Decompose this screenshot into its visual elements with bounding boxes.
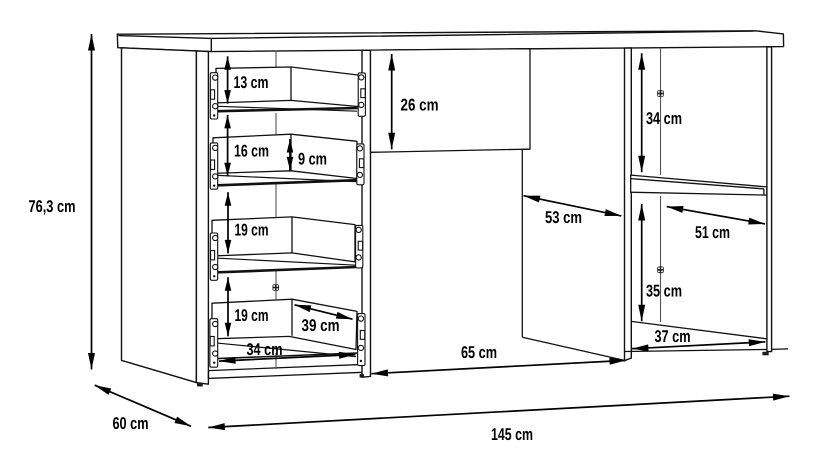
svg-text:65 cm: 65 cm (461, 343, 497, 362)
svg-text:39 cm: 39 cm (302, 316, 340, 335)
svg-text:16 cm: 16 cm (234, 142, 269, 161)
svg-text:19 cm: 19 cm (235, 306, 269, 325)
svg-text:34 cm: 34 cm (646, 109, 682, 128)
svg-text:13 cm: 13 cm (234, 73, 269, 92)
svg-text:35 cm: 35 cm (646, 282, 682, 301)
svg-text:34 cm: 34 cm (247, 340, 283, 359)
svg-text:145 cm: 145 cm (491, 425, 533, 444)
svg-text:76,3 cm: 76,3 cm (29, 197, 76, 216)
svg-text:19 cm: 19 cm (235, 221, 269, 240)
svg-text:26 cm: 26 cm (401, 96, 439, 115)
svg-text:60 cm: 60 cm (113, 414, 149, 433)
svg-text:9 cm: 9 cm (298, 150, 327, 169)
svg-text:37 cm: 37 cm (655, 327, 691, 346)
svg-text:53 cm: 53 cm (545, 208, 582, 227)
svg-text:51 cm: 51 cm (695, 223, 730, 242)
